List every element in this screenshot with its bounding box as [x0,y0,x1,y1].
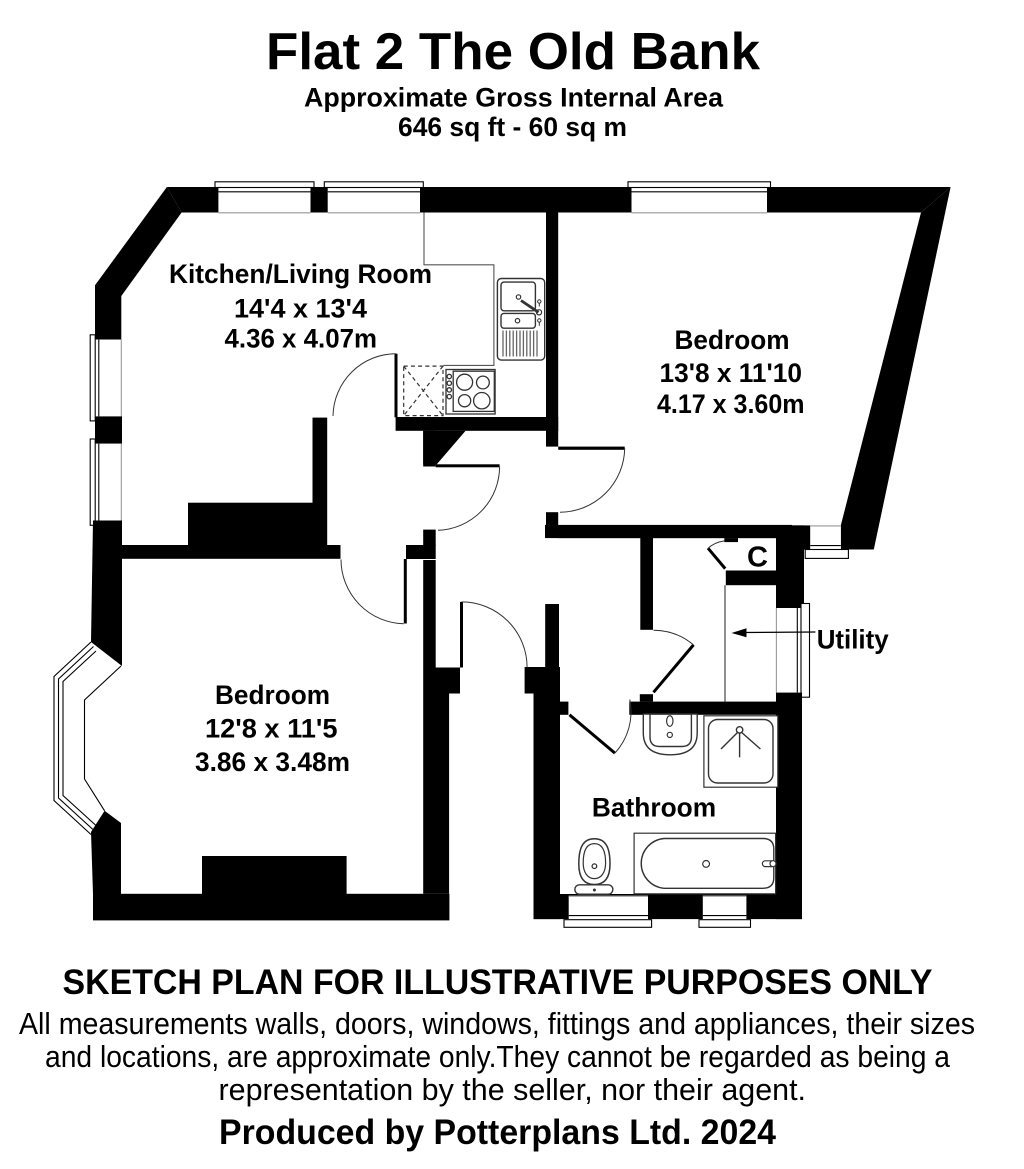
svg-text:12'8 x 11'5: 12'8 x 11'5 [205,714,338,744]
svg-text:Bedroom: Bedroom [675,325,790,355]
svg-text:Approximate Gross Internal Are: Approximate Gross Internal Area [304,83,724,113]
svg-text:13'8 x 11'10: 13'8 x 11'10 [660,358,803,388]
svg-text:C: C [747,542,768,574]
svg-text:14'4 x 13'4: 14'4 x 13'4 [234,294,367,324]
svg-text:3.86 x 3.48m: 3.86 x 3.48m [195,747,350,777]
svg-text:Flat 2 The Old Bank: Flat 2 The Old Bank [266,23,760,81]
svg-text:Bedroom: Bedroom [215,680,330,710]
svg-text:4.17 x 3.60m: 4.17 x 3.60m [657,389,805,419]
svg-text:Kitchen/Living Room: Kitchen/Living Room [169,259,432,289]
svg-text:SKETCH PLAN FOR ILLUSTRATIVE P: SKETCH PLAN FOR ILLUSTRATIVE PURPOSES ON… [63,963,933,1002]
svg-text:and locations, are approximate: and locations, are approximate only.They… [45,1039,951,1074]
svg-text:representation by the seller,: representation by the seller, nor their … [219,1072,807,1107]
svg-text:All measurements walls, doors,: All measurements walls, doors, windows, … [19,1006,975,1041]
svg-text:Utility: Utility [817,625,889,655]
svg-text:Produced by Potterplans Ltd. 2: Produced by Potterplans Ltd. 2024 [219,1113,777,1152]
svg-text:4.36 x 4.07m: 4.36 x 4.07m [225,324,378,354]
svg-text:Bathroom: Bathroom [592,793,716,823]
svg-text:646 sq ft - 60 sq m: 646 sq ft - 60 sq m [398,112,627,142]
